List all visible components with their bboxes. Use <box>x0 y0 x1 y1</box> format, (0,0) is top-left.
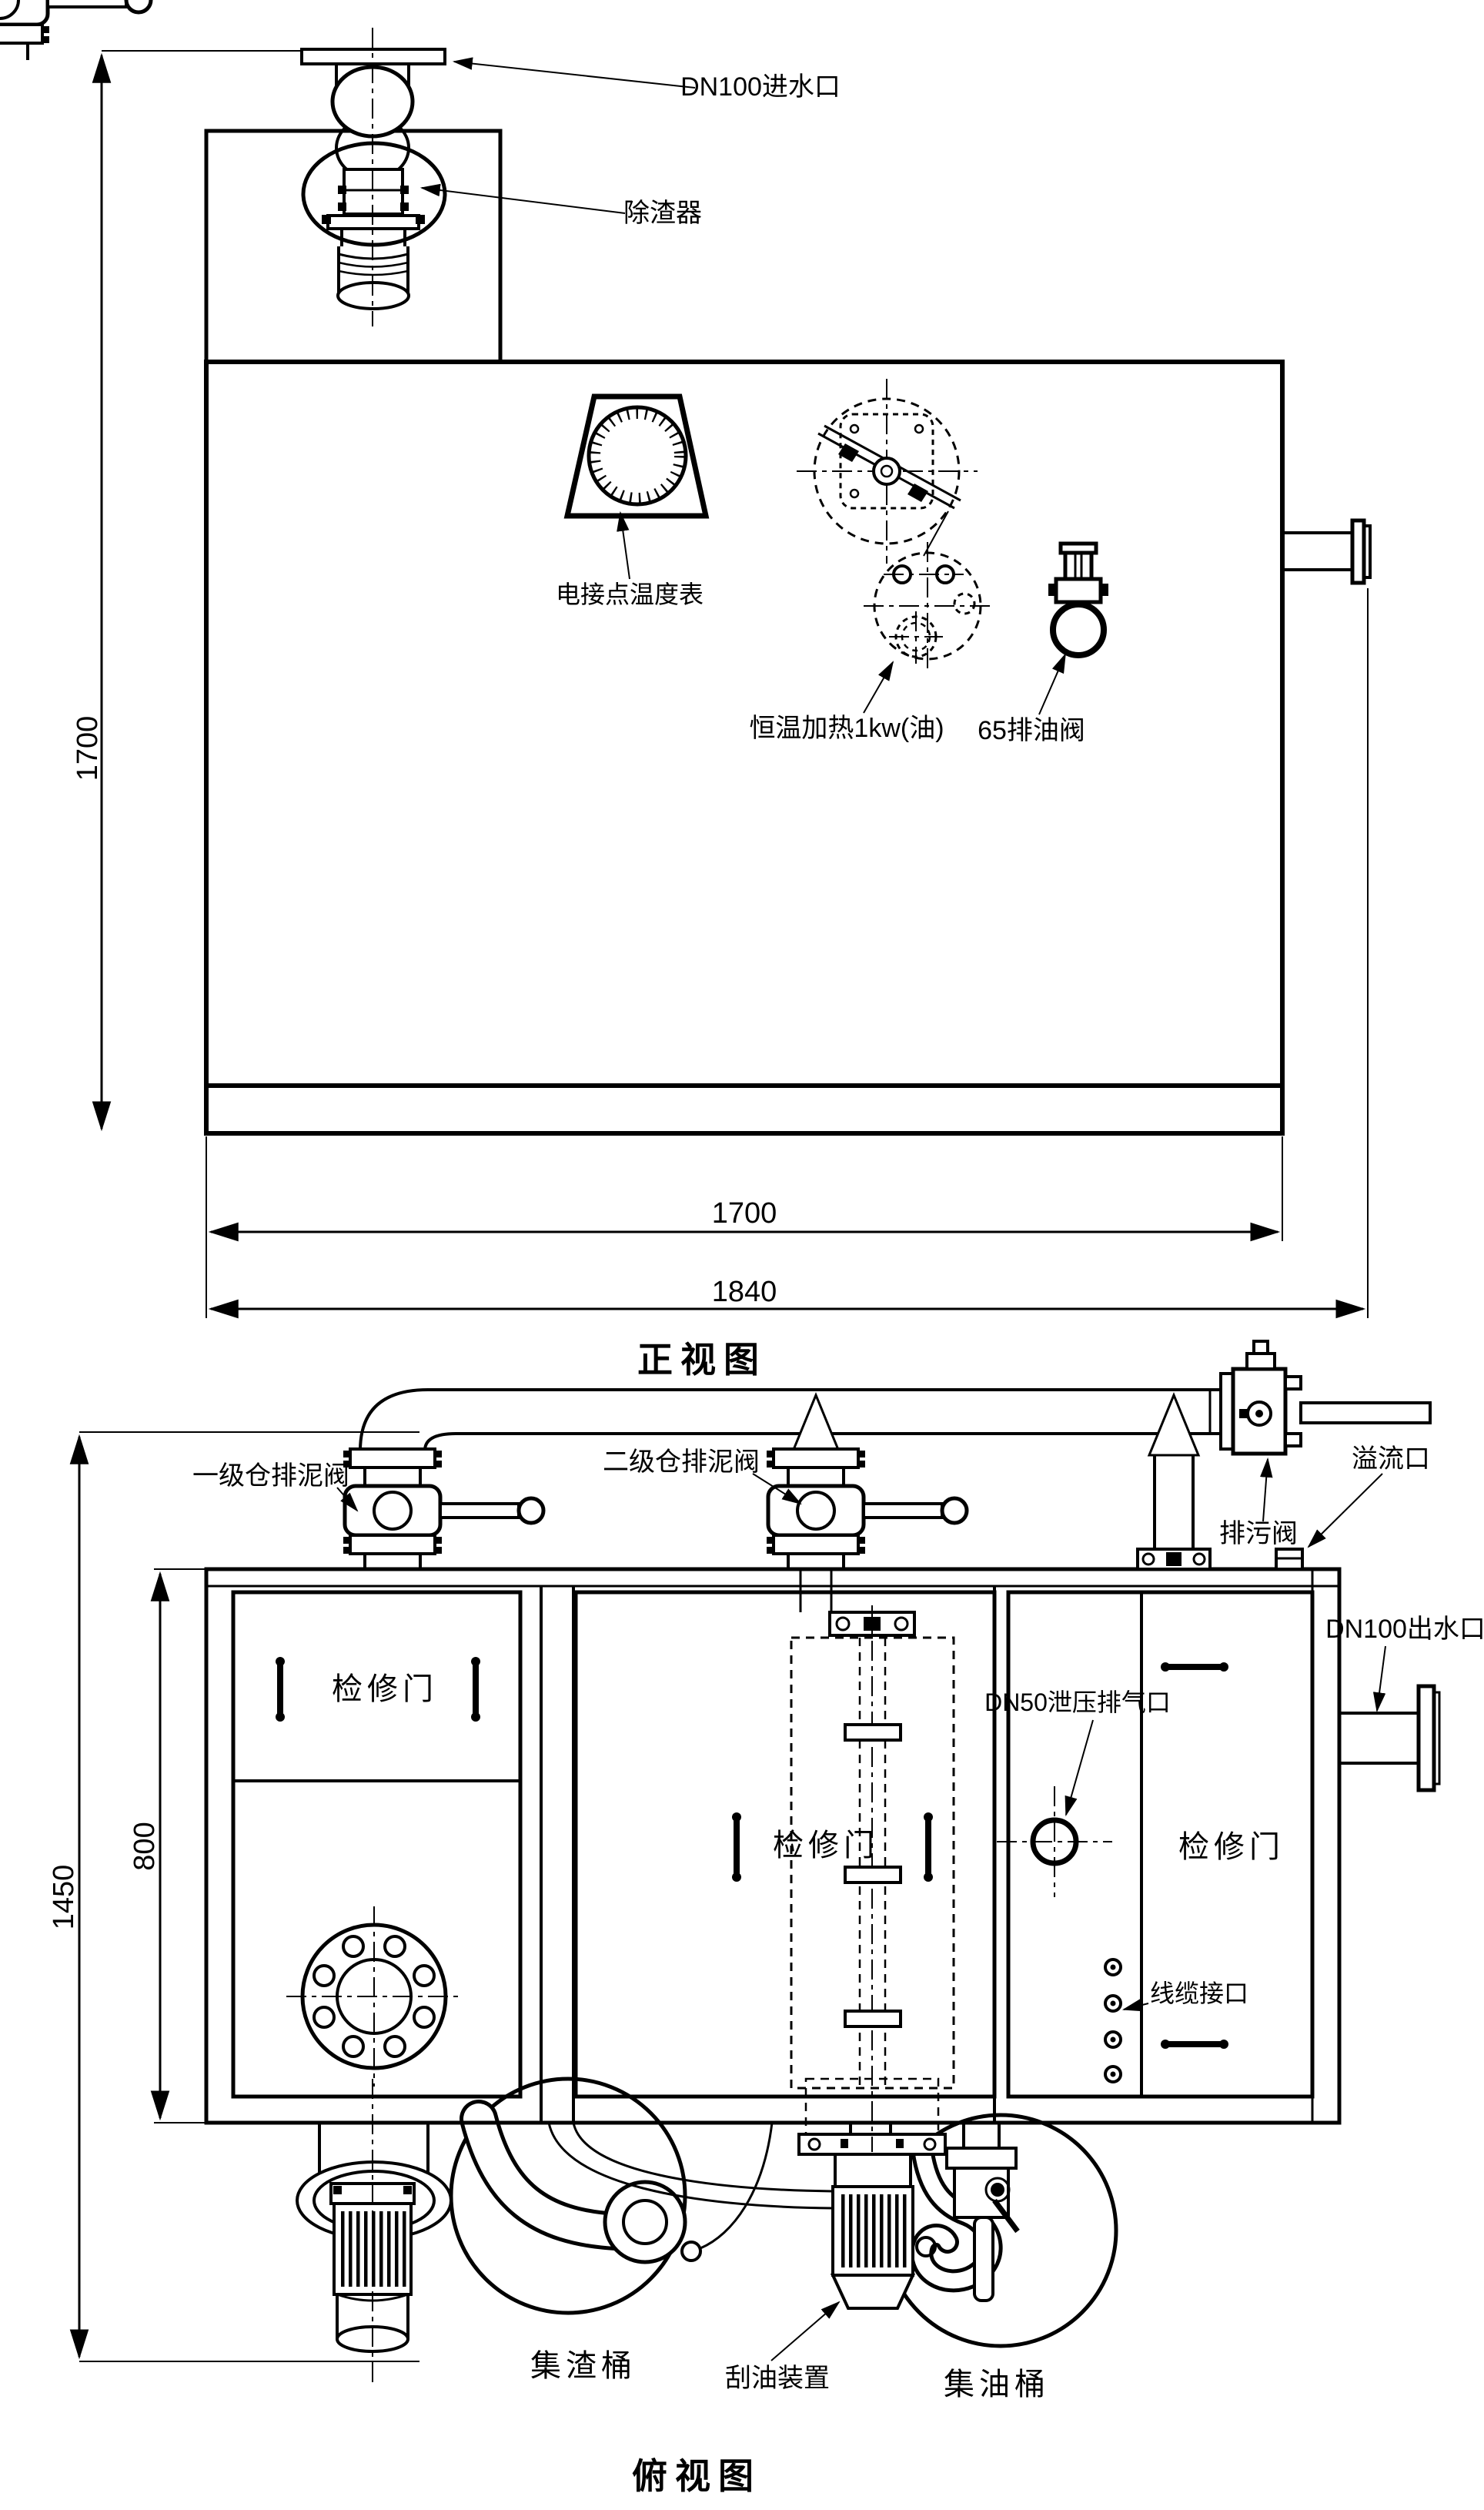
stage2-sludge-valve <box>767 1449 967 1571</box>
heater-detail-circle <box>864 542 991 670</box>
temperature-gauge <box>567 397 706 516</box>
label-cable-port: 线缆接口 <box>1150 1980 1248 2007</box>
label-overflow: 溢流口 <box>1352 1444 1430 1474</box>
slag-remover-device <box>302 28 445 326</box>
left-compartment-details <box>276 1657 480 2087</box>
dim-text-1700-v: 1700 <box>72 716 104 781</box>
label-scraper: 刮油装置 <box>725 2364 830 2393</box>
dim-text-1450: 1450 <box>48 1865 80 1930</box>
oil-drain-valve-65 <box>1048 544 1108 655</box>
front-leader-lines <box>422 62 1065 715</box>
label-dn100-inlet: DN100进水口 <box>680 72 841 102</box>
front-view: DN100进水口 除渣器 电接点温度表 恒温加热1kw(油) 65排油阀 170… <box>72 28 1370 1380</box>
label-door-left: 检修门 <box>332 1672 438 1706</box>
overflow-port <box>1276 1549 1302 1569</box>
label-stage2-valve: 二级仓排泥阀 <box>603 1447 760 1477</box>
dim-text-800: 800 <box>129 1822 161 1870</box>
label-oil-barrel: 集油桶 <box>944 2368 1050 2401</box>
front-outlet-stub <box>1282 520 1370 583</box>
label-door-middle: 检修门 <box>773 1829 879 1862</box>
label-heater: 恒温加热1kw(油) <box>749 714 944 743</box>
front-dim-widths <box>211 1232 1363 1309</box>
label-stage1-valve: 一级仓排泥阀 <box>192 1461 349 1491</box>
top-view: 一级仓排泥阀 二级仓排泥阀 排污阀 溢流口 DN100出水口 DN50泄压排气口… <box>0 0 1484 2496</box>
label-slag-remover: 除渣器 <box>623 199 702 228</box>
label-drain-valve: 排污阀 <box>1219 1519 1298 1548</box>
label-door-right: 检修门 <box>1178 1830 1285 1864</box>
drawing-svg: DN100进水口 除渣器 电接点温度表 恒温加热1kw(油) 65排油阀 170… <box>0 0 1484 2510</box>
dim-text-1700-h: 1700 <box>712 1197 777 1230</box>
label-slag-barrel: 集渣桶 <box>530 2349 637 2383</box>
bolt-flange-circle <box>286 1906 462 2087</box>
flange-detail-circle <box>797 379 978 564</box>
top-view-title: 俯视图 <box>632 2456 761 2496</box>
right-compartment-details <box>997 1662 1228 2082</box>
label-dn50-vent: DN50泄压排气口 <box>984 1688 1171 1716</box>
label-oil-valve: 65排油阀 <box>978 716 1085 745</box>
front-view-title: 正视图 <box>637 1340 767 1380</box>
label-temp-gauge: 电接点温度表 <box>556 581 704 608</box>
label-outlet: DN100出水口 <box>1325 1615 1484 1644</box>
stage1-sludge-valve <box>343 1449 543 1571</box>
top-outlet-stub <box>1339 1686 1439 1790</box>
engineering-drawing-canvas: DN100进水口 除渣器 电接点温度表 恒温加热1kw(油) 65排油阀 170… <box>0 0 1484 2510</box>
drain-valve <box>1221 1341 1430 1454</box>
dim-text-1840: 1840 <box>712 1276 777 1308</box>
front-dim-height <box>102 51 1368 1318</box>
